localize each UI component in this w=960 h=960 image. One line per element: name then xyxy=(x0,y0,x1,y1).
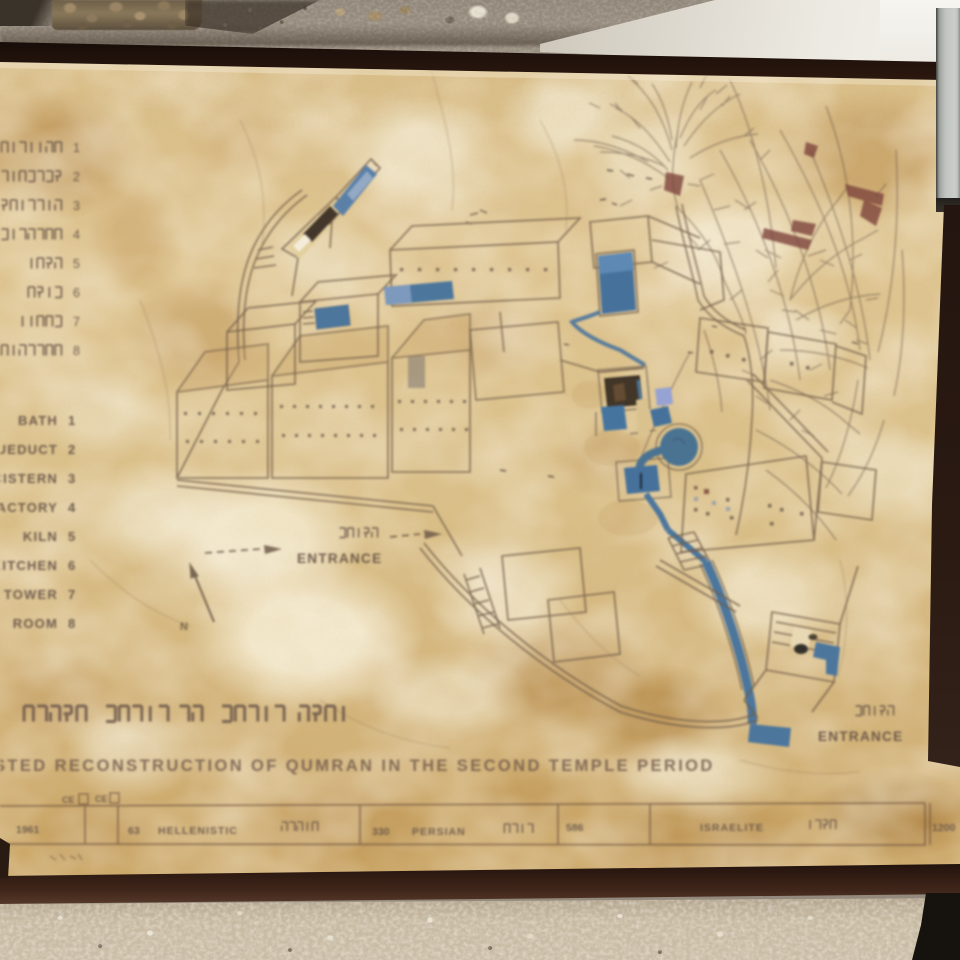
svg-text:63: 63 xyxy=(128,825,140,837)
svg-text:KITCHEN: KITCHEN xyxy=(0,558,58,573)
svg-text:HELLENISTIC: HELLENISTIC xyxy=(158,825,238,837)
svg-text:STED RECONSTRUCTION OF QUMRAN: STED RECONSTRUCTION OF QUMRAN IN THE SEC… xyxy=(0,757,715,775)
svg-text:ISRAELITE: ISRAELITE xyxy=(700,822,764,834)
svg-text:CE: CE xyxy=(95,794,108,804)
svg-text:8: 8 xyxy=(68,616,76,631)
svg-text:KILN: KILN xyxy=(23,529,58,544)
svg-text:1: 1 xyxy=(73,141,80,155)
svg-text:2: 2 xyxy=(68,442,76,457)
svg-text:PERSIAN: PERSIAN xyxy=(412,826,466,838)
svg-text:ENTRANCE: ENTRANCE xyxy=(297,551,382,566)
svg-text:FACTORY: FACTORY xyxy=(0,500,58,515)
svg-text:3: 3 xyxy=(73,199,80,213)
svg-text:5: 5 xyxy=(68,529,76,544)
svg-text:1: 1 xyxy=(68,413,76,428)
svg-text:7: 7 xyxy=(68,587,76,602)
svg-text:7: 7 xyxy=(73,315,80,329)
svg-text:1200: 1200 xyxy=(932,822,956,834)
svg-text:6: 6 xyxy=(73,286,80,300)
svg-text:586: 586 xyxy=(566,822,584,834)
svg-text:1961: 1961 xyxy=(16,824,40,836)
svg-text:ENTRANCE: ENTRANCE xyxy=(818,729,903,744)
svg-text:TOWER: TOWER xyxy=(4,587,58,602)
svg-text:2: 2 xyxy=(73,170,80,184)
svg-text:6: 6 xyxy=(68,558,76,573)
svg-text:CE: CE xyxy=(62,795,75,805)
svg-text:4: 4 xyxy=(73,228,80,242)
svg-text:N: N xyxy=(180,621,188,633)
svg-text:3: 3 xyxy=(68,471,76,486)
svg-text:QUEDUCT: QUEDUCT xyxy=(0,442,58,457)
svg-text:4: 4 xyxy=(68,500,76,515)
svg-text:BATH: BATH xyxy=(18,413,58,428)
svg-text:5: 5 xyxy=(73,257,80,271)
svg-text:8: 8 xyxy=(73,344,80,358)
svg-text:330: 330 xyxy=(372,826,390,838)
svg-text:CISTERN: CISTERN xyxy=(0,471,58,486)
svg-text:ROOM: ROOM xyxy=(13,616,58,631)
